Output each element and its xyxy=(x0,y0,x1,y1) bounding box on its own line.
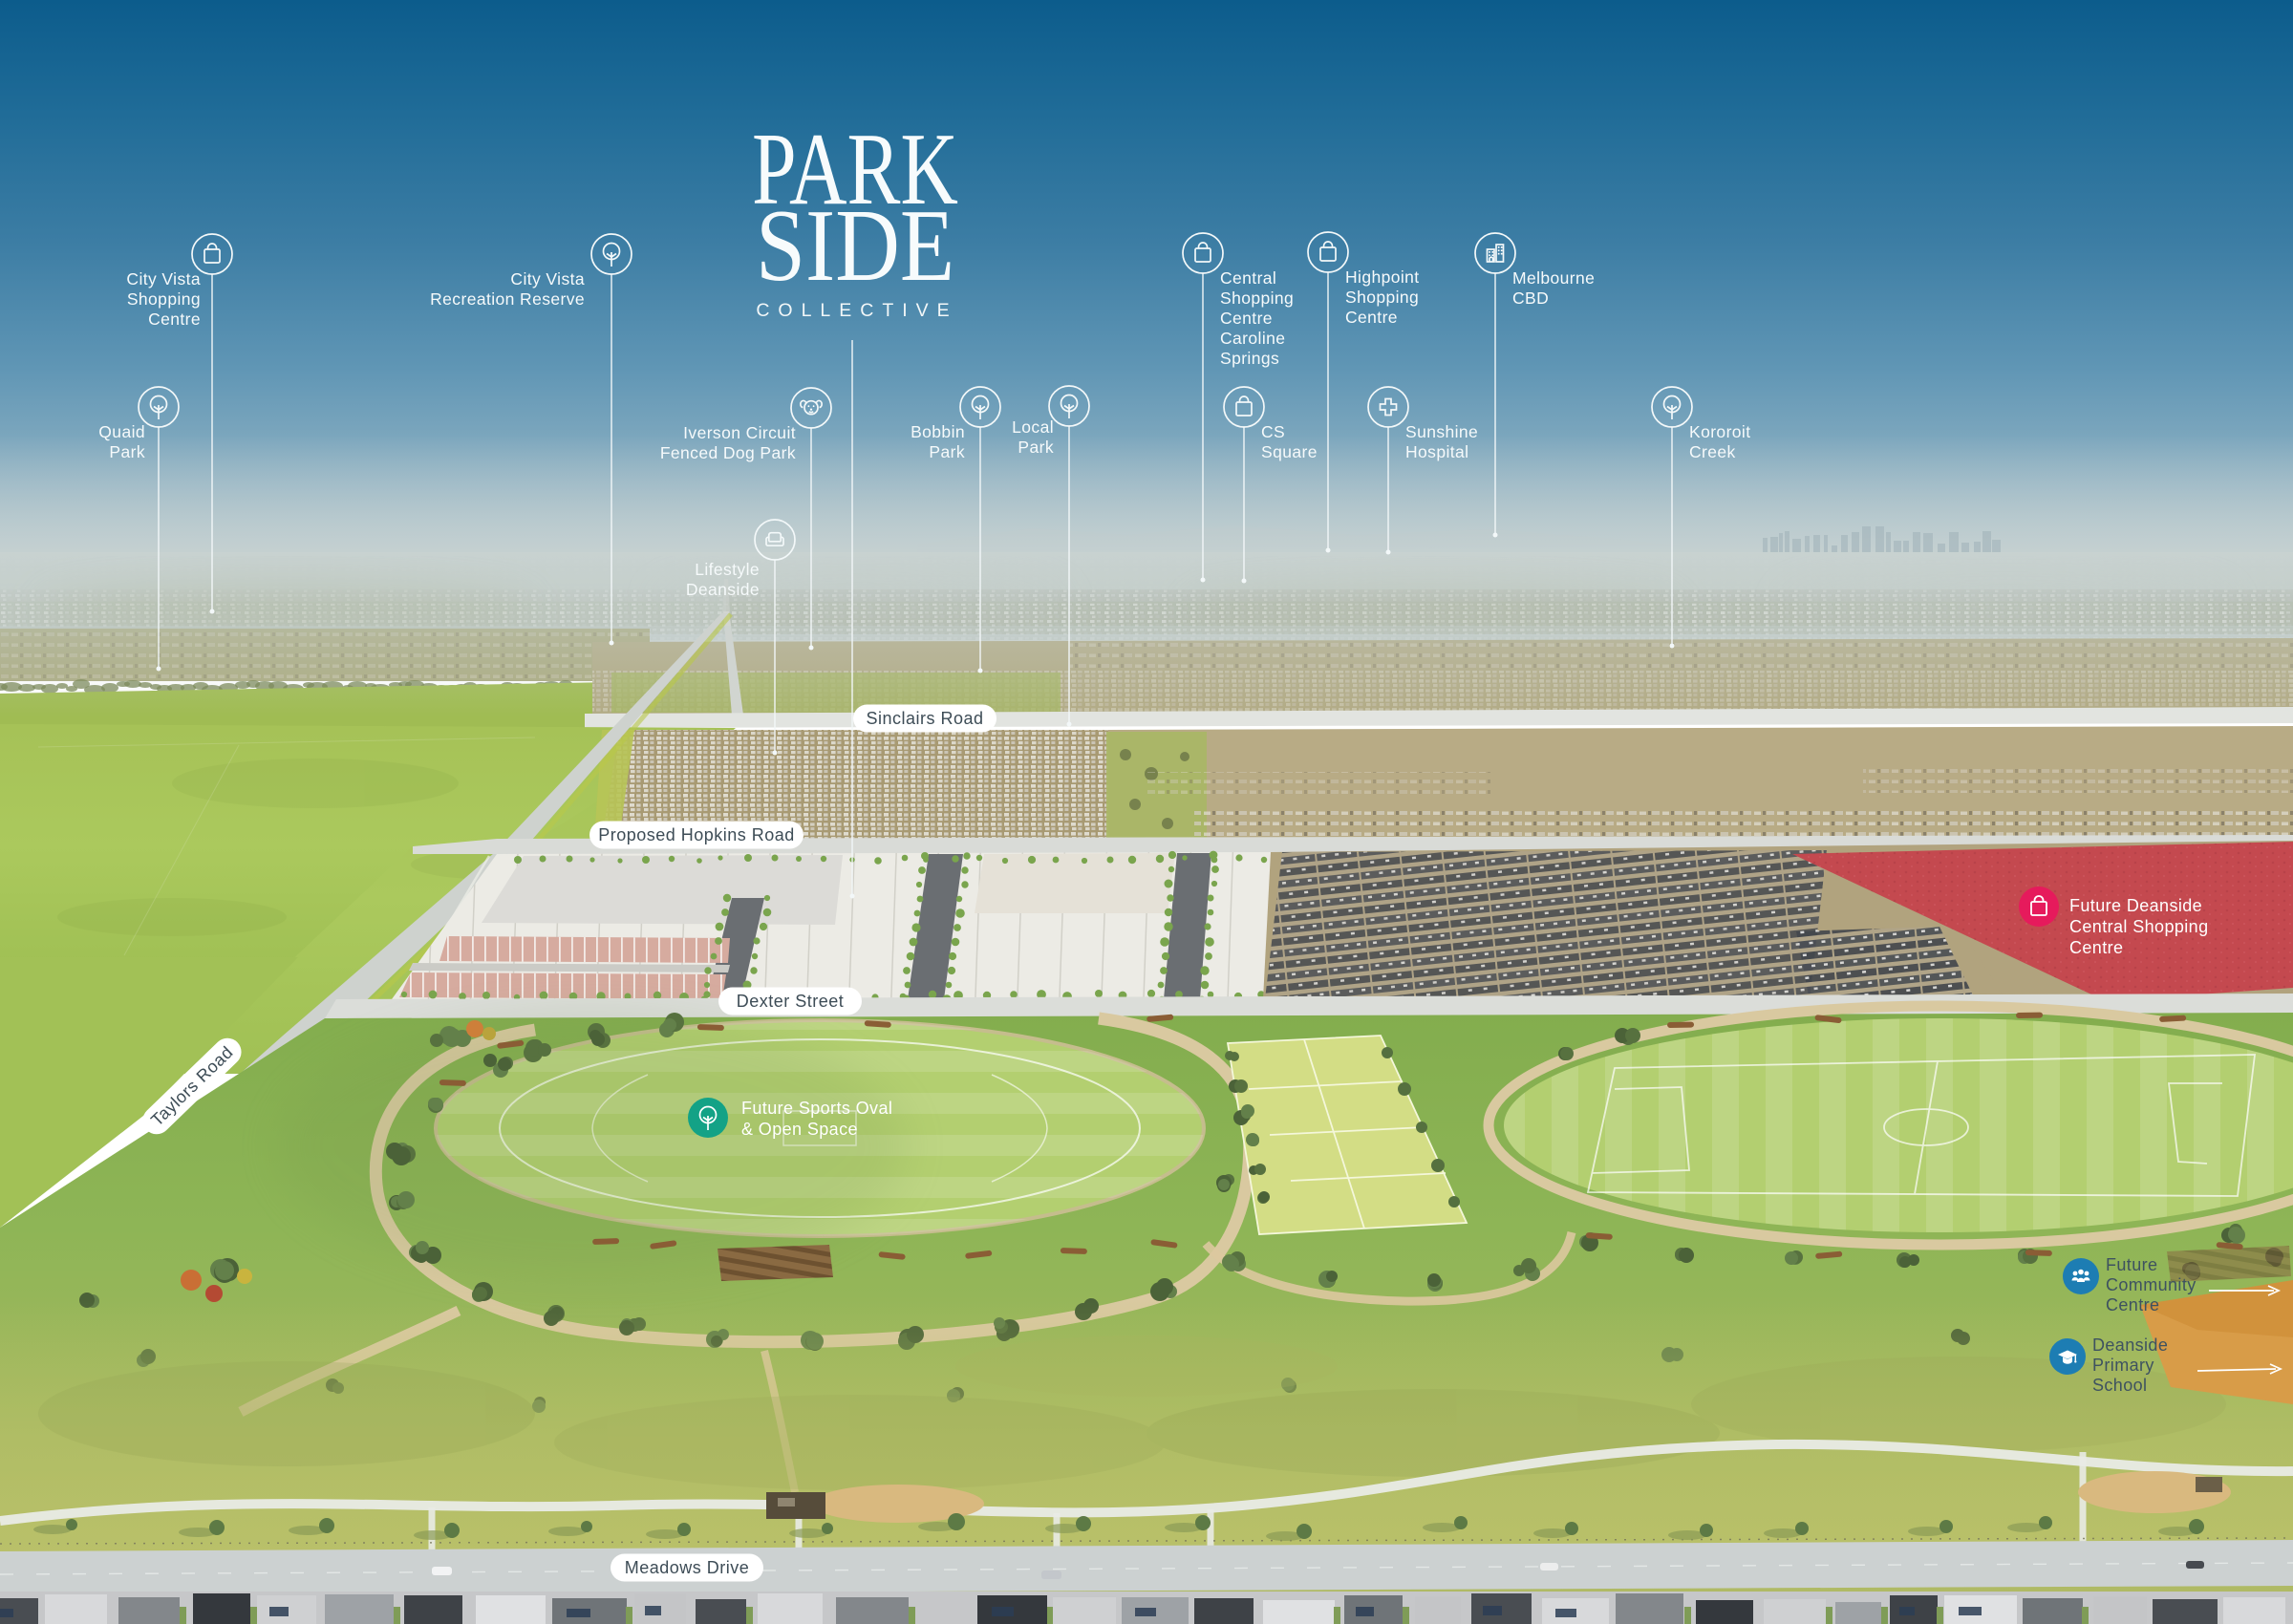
svg-text:SIDE: SIDE xyxy=(756,189,954,303)
svg-text:SunshineHospital: SunshineHospital xyxy=(1405,422,1478,461)
svg-text:Proposed Hopkins Road: Proposed Hopkins Road xyxy=(598,825,795,844)
svg-text:Sinclairs Road: Sinclairs Road xyxy=(866,709,983,728)
svg-text:Meadows Drive: Meadows Drive xyxy=(625,1558,750,1577)
svg-text:COLLECTIVE: COLLECTIVE xyxy=(756,300,957,321)
svg-text:LocalPark: LocalPark xyxy=(1012,417,1054,457)
svg-text:Dexter Street: Dexter Street xyxy=(737,992,845,1011)
svg-text:LifestyleDeanside: LifestyleDeanside xyxy=(686,560,760,599)
